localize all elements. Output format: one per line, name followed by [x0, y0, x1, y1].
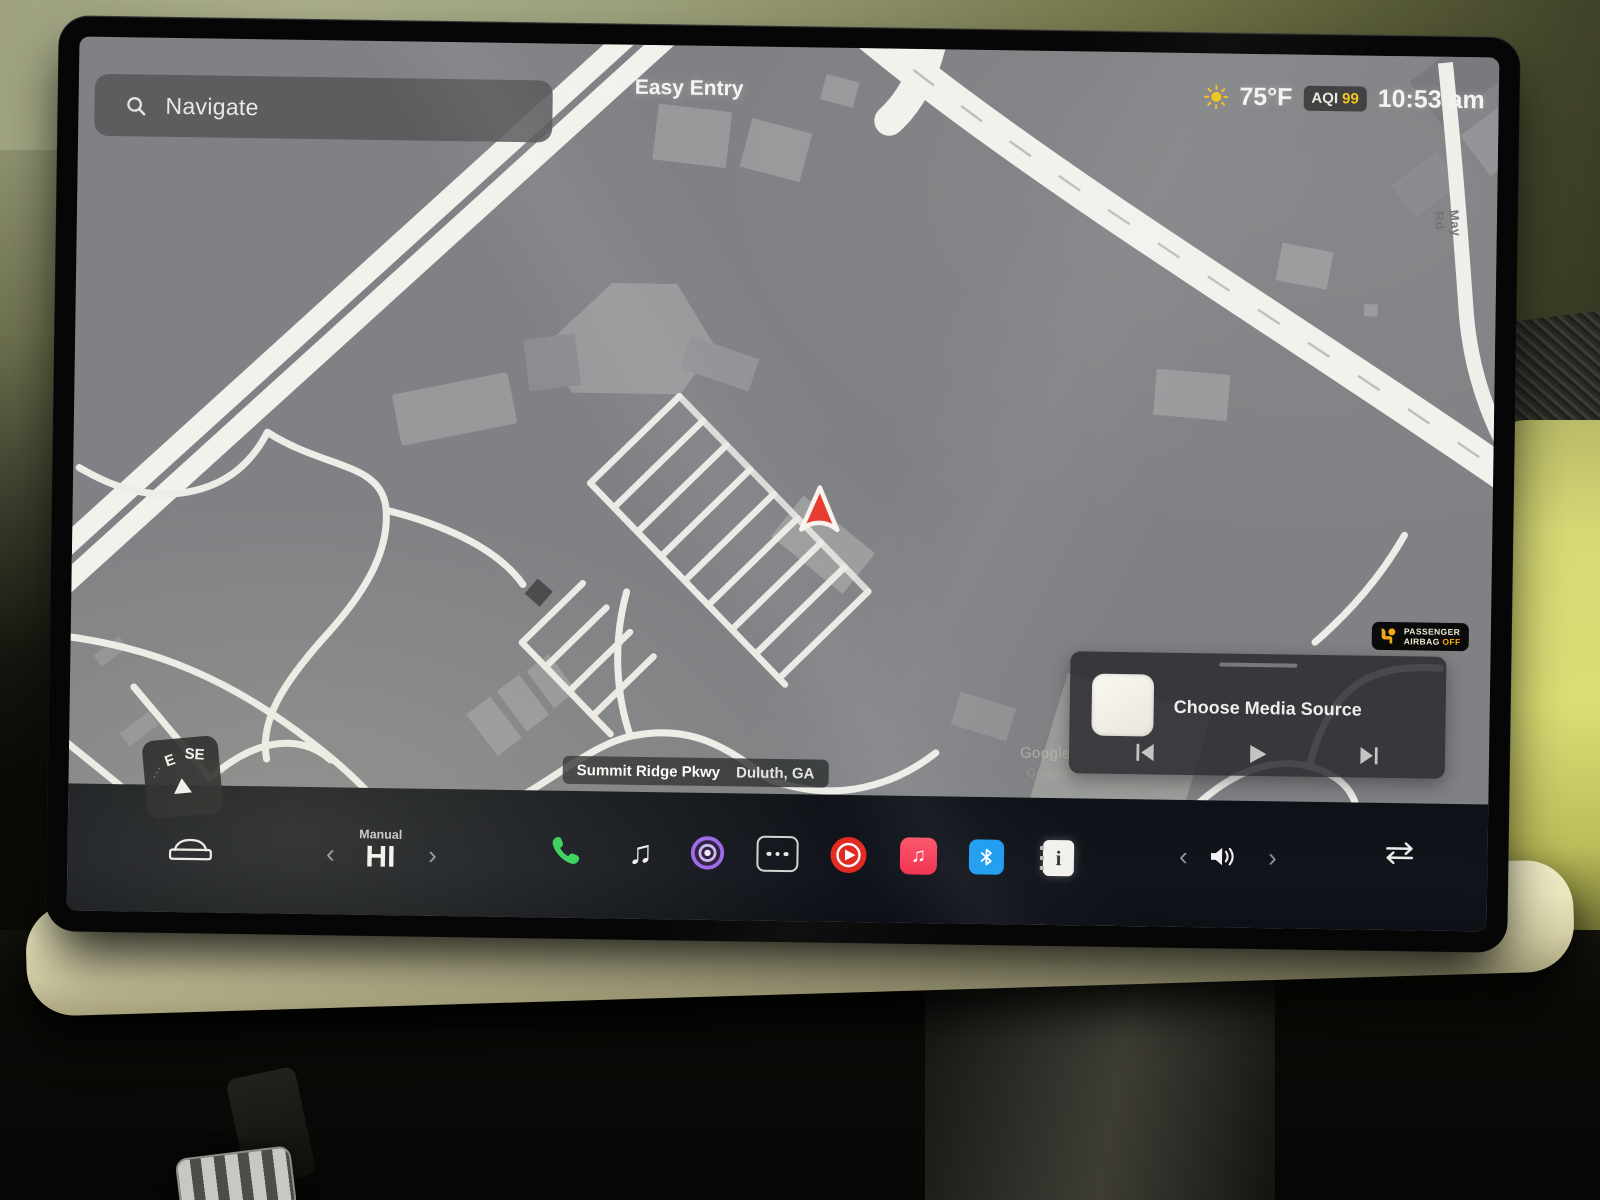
car-controls-button[interactable]	[165, 834, 215, 865]
driver-profile-button[interactable]: Easy Entry	[635, 76, 744, 102]
compass-widget[interactable]: ··· E SE	[141, 735, 224, 820]
car-icon	[165, 834, 215, 865]
release-notes-button[interactable]: i	[1043, 840, 1075, 876]
ellipsis-icon	[756, 836, 799, 873]
previous-track-button[interactable]	[1125, 738, 1165, 767]
bluetooth-button[interactable]	[969, 839, 1005, 875]
google-watermark: Google	[1020, 745, 1071, 763]
airbag-icon	[1378, 626, 1398, 646]
chevron-left-icon: ‹	[326, 840, 335, 866]
location-street: Summit Ridge Pkwy	[577, 761, 721, 780]
next-icon	[1356, 744, 1382, 768]
volume-down-button[interactable]: ‹	[1179, 843, 1188, 869]
airbag-warning-line2: AIRBAG	[1404, 636, 1440, 647]
temp-up-button[interactable]: ›	[428, 842, 437, 868]
climate-temperature: HI	[365, 842, 395, 872]
driver-profile-icon	[598, 76, 620, 98]
info-glyph: i	[1055, 846, 1061, 871]
media-app-button[interactable]: ♫	[628, 835, 653, 868]
youtube-music-icon	[828, 835, 869, 876]
air-quality-badge: AQI 99	[1303, 86, 1367, 112]
display: May Rd Google Google Navigate	[67, 37, 1500, 932]
play-icon	[1244, 742, 1270, 766]
chevron-right-icon: ›	[428, 842, 437, 868]
location-city: Duluth, GA	[736, 764, 815, 782]
compass-heading-e: E	[163, 751, 178, 770]
car-interior-photo: May Rd Google Google Navigate	[0, 0, 1600, 1200]
chevron-left-icon: ‹	[1179, 843, 1188, 869]
release-notes-icon: i	[1043, 840, 1075, 876]
volume-up-button[interactable]: ›	[1268, 844, 1277, 870]
youtube-music-app-button[interactable]	[828, 835, 869, 876]
compass-needle-icon	[173, 777, 192, 794]
volume-button[interactable]	[1208, 844, 1239, 869]
album-art-placeholder[interactable]	[1091, 674, 1154, 737]
apple-music-app-button[interactable]: ♫	[900, 837, 938, 875]
touchscreen: May Rd Google Google Navigate	[45, 15, 1520, 953]
google-watermark-reflection: Google	[1027, 766, 1068, 781]
media-source-swap-button[interactable]	[1382, 839, 1417, 867]
purple-media-app-icon	[688, 834, 727, 873]
bluetooth-icon	[969, 839, 1005, 875]
clock: 10:53 am	[1378, 85, 1485, 116]
previous-icon	[1132, 740, 1158, 764]
podcast-app-button[interactable]	[688, 834, 727, 873]
music-note-icon: ♫	[628, 835, 653, 868]
bottom-dock: ‹ Manual HI › ♫	[67, 783, 1489, 931]
apple-music-note-glyph: ♫	[911, 844, 926, 867]
media-card-drag-handle[interactable]	[1219, 662, 1297, 667]
search-icon	[124, 94, 147, 117]
airbag-off-status: OFF	[1442, 637, 1460, 647]
chevron-right-icon: ›	[1268, 844, 1277, 870]
sun-weather-icon	[1203, 84, 1228, 109]
phone-app-button[interactable]	[549, 834, 582, 867]
temp-down-button[interactable]: ‹	[326, 840, 335, 866]
compass-heading-se: SE	[184, 745, 205, 763]
speaker-icon	[1208, 844, 1239, 869]
app-launcher-button[interactable]	[756, 836, 799, 873]
aqi-label: AQI	[1311, 90, 1338, 107]
search-placeholder: Navigate	[165, 92, 259, 120]
passenger-airbag-warning: PASSENGER AIRBAG OFF	[1372, 622, 1469, 651]
aqi-value: 99	[1342, 90, 1359, 107]
media-mini-player[interactable]: Choose Media Source	[1069, 651, 1447, 779]
next-track-button[interactable]	[1349, 741, 1389, 770]
apple-music-icon: ♫	[900, 837, 938, 875]
compass-tick-marks: ···	[148, 763, 165, 781]
media-source-title[interactable]: Choose Media Source	[1174, 697, 1362, 721]
climate-control-button[interactable]: Manual HI	[359, 827, 403, 873]
unlocked-padlock-icon[interactable]	[561, 76, 583, 98]
phone-icon	[549, 834, 582, 867]
outside-temperature: 75°F	[1239, 83, 1293, 113]
play-button[interactable]	[1237, 740, 1277, 769]
road-name-label: May Rd	[1431, 209, 1465, 248]
swap-arrows-icon	[1382, 839, 1417, 867]
current-location-bar: Summit Ridge Pkwy Duluth, GA	[563, 756, 829, 788]
navigate-search-input[interactable]: Navigate	[94, 74, 553, 143]
